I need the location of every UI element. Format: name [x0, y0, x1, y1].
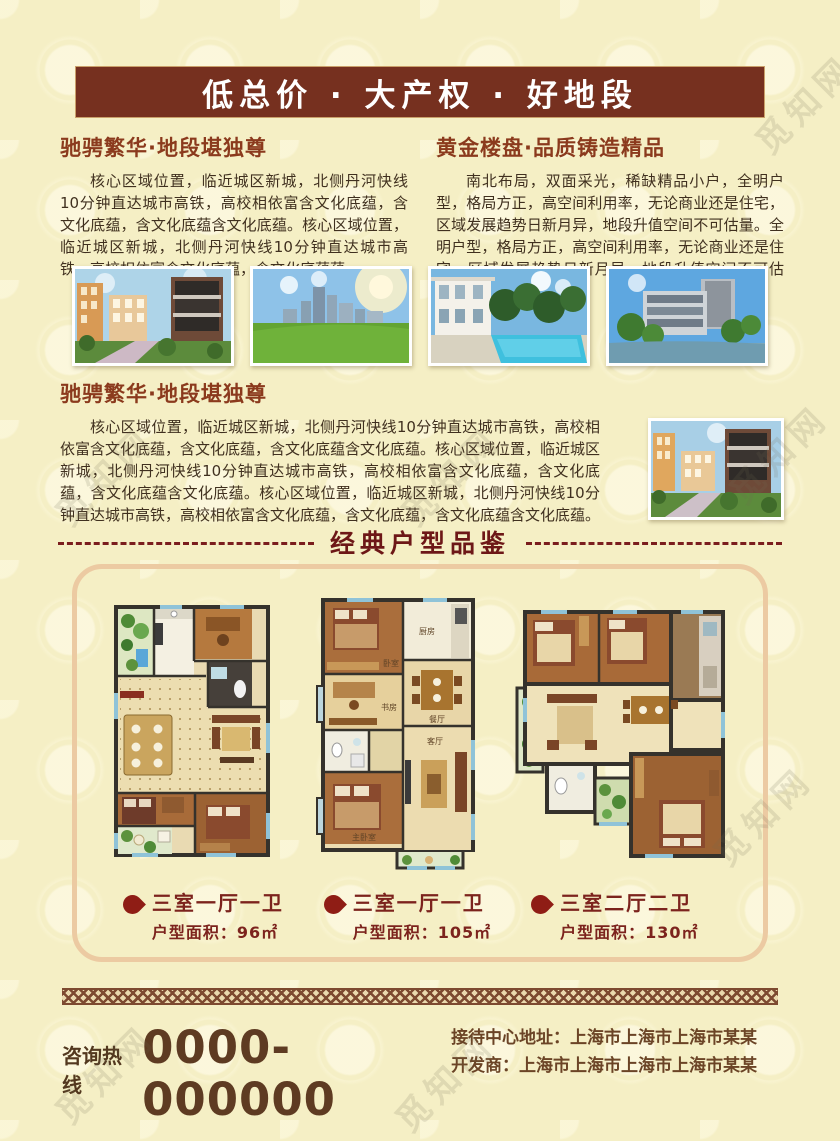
plan-2-area: 户型面积：105㎡	[353, 919, 491, 943]
plan2-kitchen-label: 厨房	[419, 626, 435, 636]
intro-right-heading: 黄金楼盘·品质铸造精品	[436, 132, 784, 162]
photo-strip	[72, 266, 768, 366]
banner-title: 低总价 · 大产权 · 好地段	[202, 70, 638, 115]
residential-courtyard-photo	[72, 266, 234, 366]
contact-info: 接待中心地址：上海市上海市上海市某某 开发商：上海市上海市上海市上海市某某	[451, 1022, 778, 1080]
footer: 咨询热线 0000-000000 接待中心地址：上海市上海市上海市某某 开发商：…	[62, 1022, 778, 1126]
floor-plan-2: 卧室 厨房 餐厅 书房	[309, 591, 487, 875]
plan2-bedroom: 卧室	[325, 602, 403, 674]
floor-plan-3	[513, 591, 735, 875]
plan-2-label: 三室一厅一卫 户型面积：105㎡	[324, 887, 491, 943]
floor-plan-1-drawing	[108, 597, 280, 869]
flyer-page: { "banner": { "title": "低总价 · 大产权 · 好地段"…	[0, 0, 840, 1132]
plan-1-type: 三室一厅一卫	[152, 887, 284, 916]
ornament-border	[62, 988, 778, 1005]
hotline-label: 咨询热线	[62, 1040, 134, 1098]
plan3-bedrooms-top	[525, 612, 671, 684]
divider-title: 经典户型品鉴	[330, 524, 510, 560]
city-skyline-lawn-image	[253, 269, 409, 363]
divider-dash-right	[526, 542, 782, 545]
plan-2-type: 三室一厅一卫	[353, 887, 491, 916]
section-location: 驰骋繁华·地段堪独尊 核心区域位置，临近城区新城，北侧丹河快线10分钟直达城市高…	[60, 378, 784, 526]
plan2-dining: 餐厅	[403, 660, 471, 726]
drop-pin-icon	[527, 891, 554, 918]
plan2-living-label: 客厅	[427, 736, 443, 746]
floor-plan-column-2: 卧室 厨房 餐厅 书房	[306, 591, 491, 943]
plan2-master-bedroom: 主卧室	[325, 772, 403, 844]
divider-dash-left	[58, 542, 314, 545]
title-banner: 低总价 · 大产权 · 好地段	[75, 66, 765, 118]
plan1-plant-balcony	[118, 609, 154, 675]
floor-plan-3-drawing	[513, 602, 735, 864]
plan-3-type: 三室二厅二卫	[560, 887, 698, 916]
hotline-number: 0000-000000	[142, 1022, 451, 1126]
floor-plan-1	[108, 591, 280, 875]
plan2-bathroom	[325, 730, 369, 772]
address-line: 接待中心地址：上海市上海市上海市某某	[451, 1024, 778, 1052]
villa-pool-photo	[428, 266, 590, 366]
floor-plan-column-3: 三室二厅二卫 户型面积：130㎡	[513, 591, 735, 943]
plan2-living: 客厅	[403, 726, 471, 850]
plan1-bathroom	[208, 661, 252, 707]
developer-line: 开发商：上海市上海市上海市上海市某某	[451, 1052, 778, 1080]
plan1-balcony-bottom	[118, 827, 172, 854]
hotline: 咨询热线 0000-000000	[62, 1022, 451, 1126]
plan-1-label: 三室一厅一卫 户型面积：96㎡	[123, 887, 284, 943]
intro-left-heading: 驰骋繁华·地段堪独尊	[60, 132, 408, 162]
residential-courtyard-photo-2	[648, 418, 784, 520]
plan1-bedroom-right	[196, 793, 266, 853]
villa-pool-image	[431, 269, 587, 363]
residential-courtyard-image-2	[651, 421, 781, 517]
intro-left-body: 核心区域位置，临近城区新城，北侧丹河快线10分钟直达城市高铁，高校相依富含文化底…	[60, 170, 408, 280]
plan2-bedroom-label: 卧室	[383, 658, 399, 668]
plan3-bathroom	[547, 764, 595, 812]
plan3-master-bedroom	[631, 754, 723, 856]
city-skyline-lawn-photo	[250, 266, 412, 366]
plan1-bedroom-left	[118, 793, 194, 827]
plan1-study	[194, 609, 252, 659]
plan-3-area: 户型面积：130㎡	[560, 919, 698, 943]
drop-pin-icon	[320, 891, 347, 918]
floor-plan-box: 三室一厅一卫 户型面积：96㎡ 卧室 厨房	[72, 564, 768, 962]
section2-body: 核心区域位置，临近城区新城，北侧丹河快线10分钟直达城市高铁，高校相依富含文化底…	[60, 416, 600, 526]
plan2-study: 书房	[325, 674, 403, 730]
section2-heading: 驰骋繁华·地段堪独尊	[60, 378, 784, 408]
plan2-dining-label: 餐厅	[429, 715, 445, 724]
floor-plan-2-drawing: 卧室 厨房 餐厅 书房	[309, 592, 487, 874]
plan2-hallway	[369, 730, 403, 772]
residential-courtyard-image	[75, 269, 231, 363]
plan-1-area: 户型面积：96㎡	[152, 919, 284, 943]
plan2-study-label: 书房	[381, 702, 397, 712]
plan1-kitchen	[154, 609, 194, 675]
plan-3-label: 三室二厅二卫 户型面积：130㎡	[531, 887, 698, 943]
divider-floor-plans: 经典户型品鉴	[58, 524, 782, 560]
plan2-kitchen: 厨房	[403, 602, 471, 660]
drop-pin-icon	[119, 891, 146, 918]
plan2-master-label: 主卧室	[352, 832, 376, 842]
plan3-green-patch	[595, 778, 631, 824]
office-waterfront-image	[609, 269, 765, 363]
floor-plan-column-1: 三室一厅一卫 户型面积：96㎡	[105, 591, 284, 943]
office-waterfront-photo	[606, 266, 768, 366]
